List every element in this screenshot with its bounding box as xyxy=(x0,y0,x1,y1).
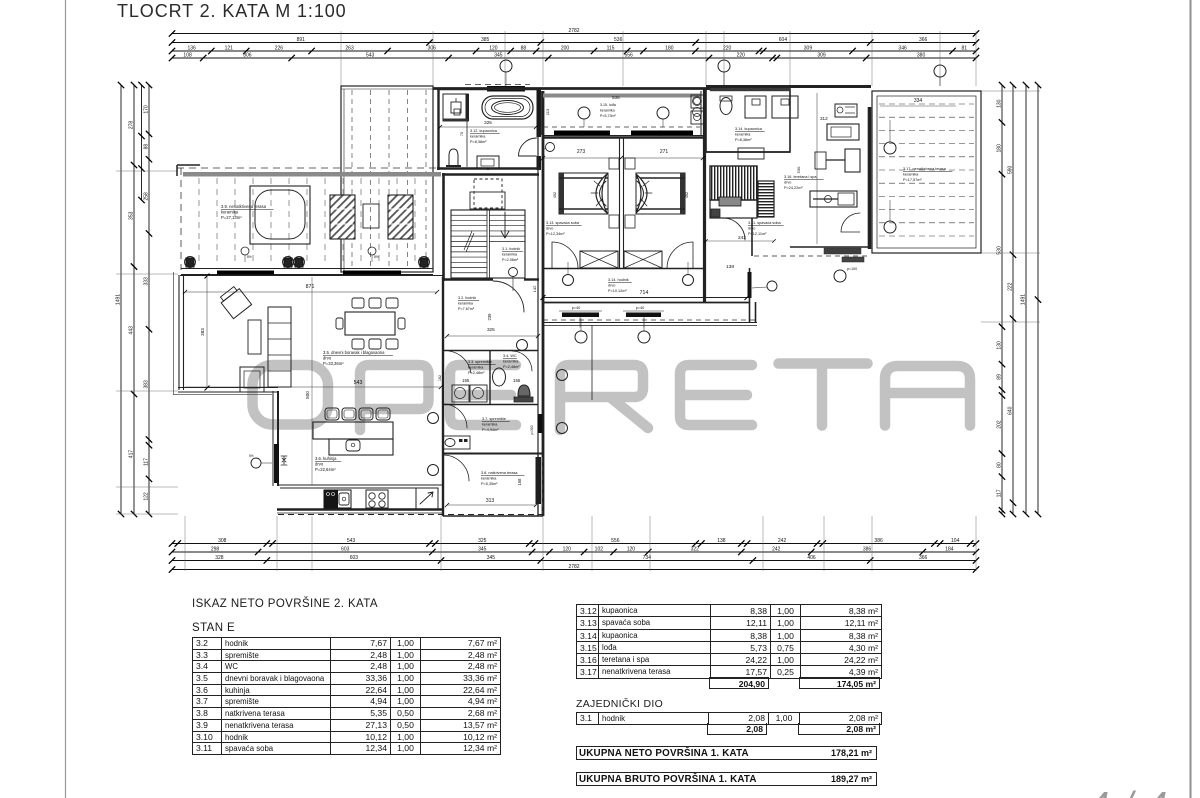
svg-text:313: 313 xyxy=(486,498,495,504)
svg-text:308: 308 xyxy=(218,538,227,544)
svg-text:298: 298 xyxy=(211,546,220,552)
svg-text:530: 530 xyxy=(796,166,801,173)
svg-text:346: 346 xyxy=(898,45,907,51)
svg-text:168: 168 xyxy=(517,478,522,486)
svg-text:120: 120 xyxy=(489,45,498,51)
svg-text:345: 345 xyxy=(487,555,496,561)
svg-text:108: 108 xyxy=(183,52,192,58)
svg-text:P=5,35m²: P=5,35m² xyxy=(481,482,498,486)
svg-text:P=33,36m²: P=33,36m² xyxy=(323,361,344,366)
svg-text:115: 115 xyxy=(607,45,615,51)
svg-text:drvo: drvo xyxy=(323,355,332,360)
svg-text:536: 536 xyxy=(612,95,620,100)
svg-text:3.7. spremište: 3.7. spremište xyxy=(482,417,506,421)
svg-text:871: 871 xyxy=(306,284,315,290)
svg-text:202: 202 xyxy=(996,420,1002,429)
svg-text:p=300: p=300 xyxy=(530,425,534,434)
svg-text:306: 306 xyxy=(428,45,437,51)
svg-text:P=12,11m²: P=12,11m² xyxy=(748,232,767,236)
svg-text:3.9. nenatkrivena terasa: 3.9. nenatkrivena terasa xyxy=(221,204,267,209)
svg-text:333: 333 xyxy=(143,277,149,286)
svg-text:P=24,22m²: P=24,22m² xyxy=(784,186,803,190)
svg-text:383: 383 xyxy=(143,380,149,389)
svg-text:556: 556 xyxy=(624,52,633,58)
svg-text:keramika: keramika xyxy=(221,209,239,214)
svg-text:220: 220 xyxy=(723,45,732,51)
svg-text:184: 184 xyxy=(945,546,954,552)
svg-text:258: 258 xyxy=(143,192,149,201)
svg-text:278: 278 xyxy=(128,121,134,130)
svg-text:81: 81 xyxy=(962,45,968,51)
svg-text:155: 155 xyxy=(513,378,521,383)
svg-text:385: 385 xyxy=(481,37,490,43)
svg-text:3.3. spremište: 3.3. spremište xyxy=(468,360,492,364)
svg-text:121: 121 xyxy=(225,45,234,51)
svg-text:8%: 8% xyxy=(247,255,252,259)
svg-text:drvo: drvo xyxy=(546,226,553,230)
svg-text:117: 117 xyxy=(996,489,1002,497)
svg-text:P=5,73m²: P=5,73m² xyxy=(600,114,616,118)
svg-text:263: 263 xyxy=(345,45,354,51)
svg-text:603: 603 xyxy=(350,555,359,561)
svg-text:8%: 8% xyxy=(374,255,379,259)
svg-text:891: 891 xyxy=(297,37,306,43)
svg-text:452: 452 xyxy=(553,192,557,198)
svg-text:130: 130 xyxy=(996,341,1002,350)
svg-text:3.1. hodnik: 3.1. hodnik xyxy=(502,247,520,251)
svg-text:383: 383 xyxy=(200,328,205,336)
svg-text:334: 334 xyxy=(914,98,923,104)
svg-text:3.14. hodnik: 3.14. hodnik xyxy=(608,278,629,282)
svg-text:800: 800 xyxy=(305,391,310,399)
svg-text:138: 138 xyxy=(717,538,726,544)
svg-text:3.16. teretana i spa: 3.16. teretana i spa xyxy=(784,175,817,179)
svg-text:239: 239 xyxy=(487,313,492,321)
svg-text:P=2,48m²: P=2,48m² xyxy=(503,365,520,369)
svg-text:3.5. dnevni boravak i blagovao: 3.5. dnevni boravak i blagovaona xyxy=(323,350,385,355)
svg-text:113: 113 xyxy=(545,108,550,115)
svg-text:2782: 2782 xyxy=(568,564,579,570)
svg-text:543: 543 xyxy=(354,380,363,386)
svg-text:3.4. WC: 3.4. WC xyxy=(503,354,517,358)
svg-text:keramika: keramika xyxy=(903,172,919,176)
svg-text:1491: 1491 xyxy=(1020,294,1026,305)
svg-text:312: 312 xyxy=(820,116,828,121)
svg-text:309: 309 xyxy=(804,45,813,51)
svg-text:200: 200 xyxy=(561,45,570,51)
svg-text:P=22,64m²: P=22,64m² xyxy=(315,467,336,472)
svg-text:543: 543 xyxy=(347,538,356,544)
svg-text:325: 325 xyxy=(487,327,495,332)
svg-text:345: 345 xyxy=(478,546,487,552)
svg-text:88: 88 xyxy=(521,45,527,51)
svg-text:keramika: keramika xyxy=(502,252,518,256)
svg-text:130: 130 xyxy=(996,99,1002,108)
svg-text:P=4,94m²: P=4,94m² xyxy=(482,428,499,432)
svg-text:604: 604 xyxy=(779,37,788,43)
svg-text:325: 325 xyxy=(484,120,492,125)
svg-text:3.11. spavaća soba: 3.11. spavaća soba xyxy=(748,221,782,225)
svg-text:P=12,34m²: P=12,34m² xyxy=(546,232,565,236)
svg-text:drvo: drvo xyxy=(608,283,615,287)
svg-text:keramika: keramika xyxy=(481,476,497,480)
svg-text:P=8,38m²: P=8,38m² xyxy=(470,140,487,144)
svg-text:530: 530 xyxy=(996,246,1002,255)
svg-text:3.6. kuhinja: 3.6. kuhinja xyxy=(315,456,337,461)
svg-text:120: 120 xyxy=(563,546,572,552)
svg-text:328: 328 xyxy=(215,555,224,561)
svg-text:keramika: keramika xyxy=(503,359,519,363)
svg-text:89: 89 xyxy=(996,374,1002,380)
svg-text:keramika: keramika xyxy=(468,365,484,369)
svg-text:366: 366 xyxy=(919,37,928,43)
svg-text:p=40: p=40 xyxy=(636,306,645,310)
svg-text:P=27,13m²: P=27,13m² xyxy=(221,215,242,220)
svg-text:138: 138 xyxy=(726,264,734,270)
svg-text:180: 180 xyxy=(996,144,1002,153)
svg-text:3.17. nenatkrivena terasa: 3.17. nenatkrivena terasa xyxy=(903,167,947,171)
svg-text:406: 406 xyxy=(807,555,816,561)
svg-text:keramika: keramika xyxy=(735,132,751,136)
svg-text:keramika: keramika xyxy=(482,422,498,426)
svg-text:640: 640 xyxy=(1007,406,1013,415)
svg-text:155: 155 xyxy=(462,378,470,383)
svg-text:345: 345 xyxy=(494,52,503,58)
svg-text:3.13. spavaća soba: 3.13. spavaća soba xyxy=(546,221,580,225)
svg-text:452: 452 xyxy=(685,192,689,198)
svg-text:P=2,48m²: P=2,48m² xyxy=(468,371,485,375)
svg-text:714: 714 xyxy=(640,290,649,296)
svg-text:1491: 1491 xyxy=(115,294,121,305)
svg-text:366: 366 xyxy=(919,555,928,561)
svg-text:170: 170 xyxy=(143,105,149,114)
svg-text:242: 242 xyxy=(772,546,781,552)
svg-text:P=2,08m²: P=2,08m² xyxy=(502,258,519,262)
svg-text:keramika: keramika xyxy=(600,108,615,112)
svg-text:322: 322 xyxy=(691,546,700,552)
svg-text:220: 220 xyxy=(737,52,746,58)
svg-text:603: 603 xyxy=(341,546,350,552)
svg-text:353: 353 xyxy=(128,211,134,220)
svg-text:142: 142 xyxy=(532,285,537,292)
svg-text:102: 102 xyxy=(595,546,604,552)
svg-text:242: 242 xyxy=(778,538,787,544)
svg-text:443: 443 xyxy=(128,326,134,335)
svg-text:117: 117 xyxy=(143,458,149,466)
svg-text:306: 306 xyxy=(243,52,252,58)
svg-text:417: 417 xyxy=(128,450,134,459)
svg-text:120: 120 xyxy=(627,546,636,552)
svg-text:P=10,12m²: P=10,12m² xyxy=(608,289,627,293)
svg-text:keramika: keramika xyxy=(458,301,474,305)
svg-text:386: 386 xyxy=(874,538,883,544)
svg-text:70: 70 xyxy=(460,132,464,136)
svg-text:543: 543 xyxy=(366,52,375,58)
svg-text:P=17,57m²: P=17,57m² xyxy=(903,178,922,182)
svg-text:273: 273 xyxy=(577,149,586,155)
svg-text:136: 136 xyxy=(187,45,196,51)
svg-text:3.8. natkrivena terasa: 3.8. natkrivena terasa xyxy=(481,471,518,475)
svg-text:104: 104 xyxy=(951,538,960,544)
svg-text:162: 162 xyxy=(438,375,442,381)
svg-text:keramika: keramika xyxy=(470,134,486,138)
svg-text:P=8,38m²: P=8,38m² xyxy=(735,138,752,142)
svg-text:380: 380 xyxy=(917,52,926,58)
svg-text:5%: 5% xyxy=(249,454,254,458)
svg-text:p=40: p=40 xyxy=(572,306,581,310)
svg-text:88: 88 xyxy=(143,144,149,150)
svg-text:drvo: drvo xyxy=(315,461,324,466)
svg-text:309: 309 xyxy=(817,52,826,58)
svg-text:222: 222 xyxy=(1007,282,1013,291)
svg-text:3.14. kupaonica: 3.14. kupaonica xyxy=(735,127,763,131)
svg-text:271: 271 xyxy=(660,149,669,155)
svg-text:386: 386 xyxy=(863,546,872,552)
svg-text:226: 226 xyxy=(275,45,284,51)
svg-text:3.15. lođa: 3.15. lođa xyxy=(600,103,616,107)
svg-text:P=7,67m²: P=7,67m² xyxy=(458,307,475,311)
svg-text:drvo: drvo xyxy=(784,180,791,184)
svg-text:180: 180 xyxy=(665,45,674,51)
svg-text:3.12. kupaonica: 3.12. kupaonica xyxy=(470,129,498,133)
svg-text:122: 122 xyxy=(143,492,149,501)
svg-text:556: 556 xyxy=(611,538,620,544)
svg-text:536: 536 xyxy=(614,37,623,43)
svg-text:p=100: p=100 xyxy=(847,267,857,271)
svg-text:2782: 2782 xyxy=(568,28,579,34)
svg-text:80: 80 xyxy=(996,462,1002,468)
svg-text:325: 325 xyxy=(478,538,487,544)
svg-text:3.2. hodnik: 3.2. hodnik xyxy=(458,296,476,300)
svg-text:590: 590 xyxy=(1007,165,1013,174)
